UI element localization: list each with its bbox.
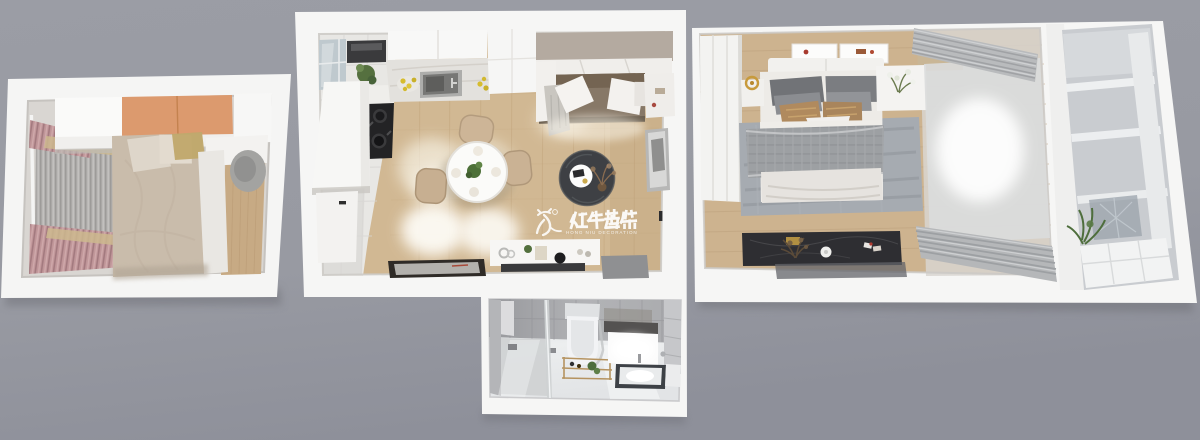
svg-text:HONG NIU DECORATION: HONG NIU DECORATION — [566, 230, 638, 235]
